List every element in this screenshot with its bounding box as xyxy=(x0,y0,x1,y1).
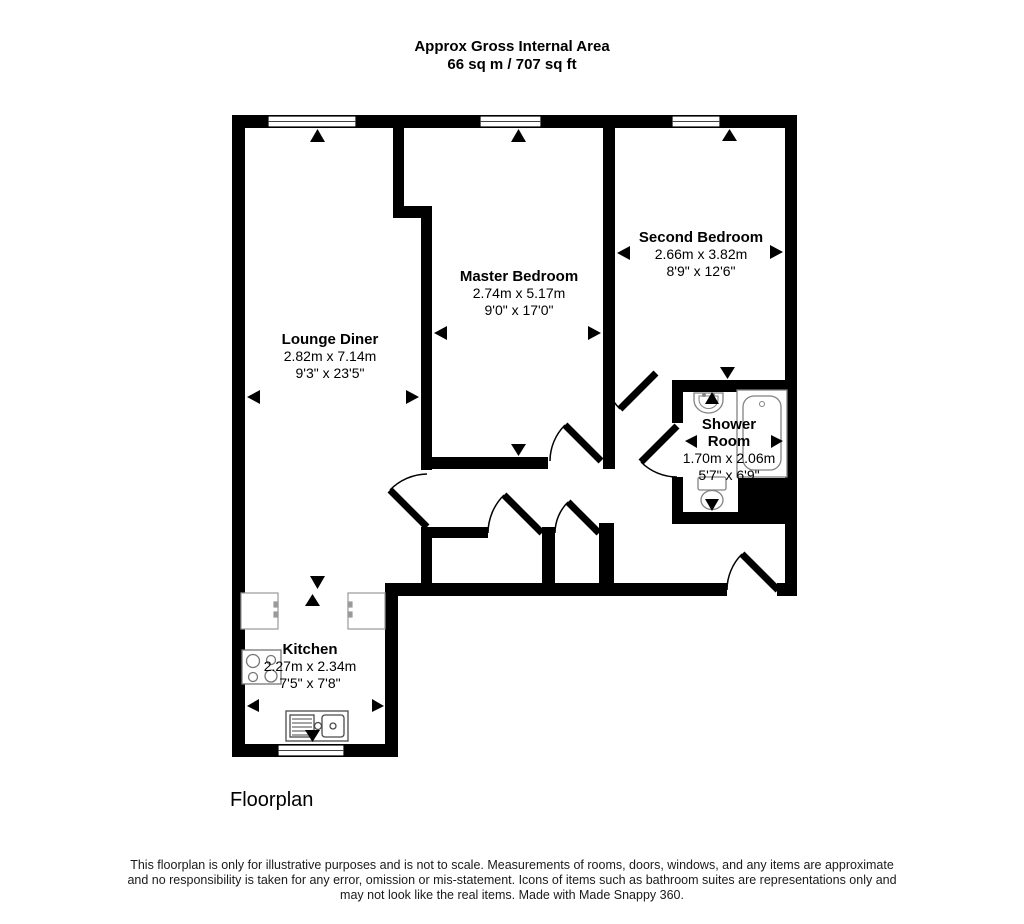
room-size-imperial: 9'0" x 17'0" xyxy=(460,302,578,319)
second-bedroom-label: Second Bedroom 2.66m x 3.82m 8'9" x 12'6… xyxy=(639,229,763,280)
disclaimer-line-1: This floorplan is only for illustrative … xyxy=(32,858,992,873)
wall-master-bottom xyxy=(421,457,548,469)
kitchen-arrow-left-icon xyxy=(247,699,259,712)
room-name: Kitchen xyxy=(264,641,357,658)
master-bedroom-door-icon xyxy=(550,425,601,461)
kitchen-cabinet-left-icon xyxy=(241,593,278,629)
room-size-metric: 1.70m x 2.06m xyxy=(683,450,776,467)
floorplan-drawing xyxy=(0,0,1024,924)
room-size-imperial: 8'9" x 12'6" xyxy=(639,263,763,280)
master-arrow-up-icon xyxy=(511,129,526,142)
entrance-door-icon xyxy=(727,554,778,590)
wall-master-left xyxy=(421,206,432,470)
lounge-arrow-down-icon xyxy=(310,576,325,589)
lounge-arrow-left-icon xyxy=(247,390,260,404)
kitchen-window-icon xyxy=(278,745,344,756)
room-name: Second Bedroom xyxy=(639,229,763,246)
second-arrow-right-icon xyxy=(770,245,783,259)
disclaimer-text: This floorplan is only for illustrative … xyxy=(32,858,992,904)
wall-lounge-master-upper xyxy=(393,128,404,214)
wall-cupboard-top xyxy=(421,527,488,538)
disclaimer-line-3: may not look like the real items. Made w… xyxy=(32,888,992,903)
room-name: Lounge Diner xyxy=(282,331,379,348)
kitchen-cabinet-right-icon xyxy=(348,593,385,629)
lounge-door-icon xyxy=(390,474,427,527)
master-arrow-right-icon xyxy=(588,326,601,340)
room-size-metric: 2.74m x 5.17m xyxy=(460,285,578,302)
wall-kitchen-right xyxy=(385,583,398,757)
wall-shower-bottom xyxy=(672,512,742,524)
room-size-imperial: 5'7" x 6'9" xyxy=(683,467,776,484)
master-bedroom-label: Master Bedroom 2.74m x 5.17m 9'0" x 17'0… xyxy=(460,268,578,319)
second-arrow-up-icon xyxy=(722,129,737,141)
room-name: Shower Room xyxy=(690,416,768,450)
lounge-diner-label: Lounge Diner 2.82m x 7.14m 9'3" x 23'5" xyxy=(282,331,379,382)
room-size-metric: 2.82m x 7.14m xyxy=(282,348,379,365)
master-arrow-down-icon xyxy=(511,444,526,456)
wall-cupboard-stub xyxy=(542,527,555,596)
room-size-metric: 2.27m x 2.34m xyxy=(264,658,357,675)
master-arrow-left-icon xyxy=(434,326,447,340)
lounge-window-icon xyxy=(268,116,356,127)
disclaimer-line-2: and no responsibility is taken for any e… xyxy=(32,873,992,888)
room-size-imperial: 9'3" x 23'5" xyxy=(282,365,379,382)
wall-shower-corner-block xyxy=(738,478,797,524)
second-bedroom-window-icon xyxy=(672,116,720,127)
room-size-imperial: 7'5" x 7'8" xyxy=(264,675,357,692)
second-arrow-left-icon xyxy=(617,246,630,260)
shower-room-door-icon xyxy=(641,426,677,477)
lounge-arrow-right-icon xyxy=(406,390,419,404)
cupboard-door-right-icon xyxy=(555,502,599,533)
master-window-icon xyxy=(480,116,541,127)
second-arrow-down-icon xyxy=(720,367,735,379)
wall-master-right xyxy=(603,128,615,469)
wall-shower-left-upper xyxy=(672,380,683,423)
kitchen-arrow-right-icon xyxy=(372,699,384,712)
kitchen-label: Kitchen 2.27m x 2.34m 7'5" x 7'8" xyxy=(264,641,357,692)
cupboard-door-left-icon xyxy=(488,495,542,533)
shower-room-label: Shower Room 1.70m x 2.06m 5'7" x 6'9" xyxy=(683,416,776,484)
kitchen-arrow-up-icon xyxy=(305,594,320,606)
lounge-arrow-up-icon xyxy=(310,129,325,142)
room-name: Master Bedroom xyxy=(460,268,578,285)
room-size-metric: 2.66m x 3.82m xyxy=(639,246,763,263)
floorplan-page: Approx Gross Internal Area 66 sq m / 707… xyxy=(0,0,1024,924)
wall-entrance-divider xyxy=(599,523,614,596)
floorplan-caption: Floorplan xyxy=(230,788,313,812)
kitchen-sink-icon xyxy=(286,711,348,741)
wall-hall-bottom-left xyxy=(385,583,727,596)
